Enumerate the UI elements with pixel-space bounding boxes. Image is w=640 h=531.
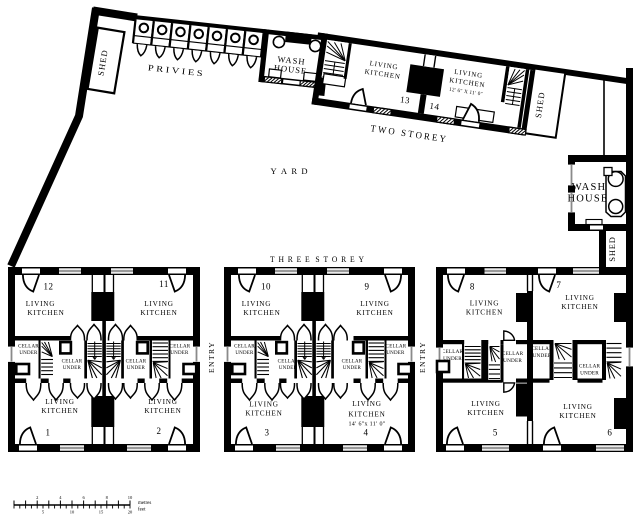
svg-text:KITCHEN: KITCHEN — [348, 411, 385, 419]
svg-text:KITCHEN: KITCHEN — [140, 309, 177, 317]
svg-text:LIVING: LIVING — [565, 294, 595, 302]
svg-text:11: 11 — [159, 279, 169, 289]
svg-text:CELLAR: CELLAR — [170, 345, 191, 350]
svg-text:KITCHEN: KITCHEN — [466, 309, 503, 317]
svg-text:KITCHEN: KITCHEN — [144, 407, 181, 415]
svg-text:LIVING: LIVING — [360, 300, 390, 308]
svg-text:KITCHEN: KITCHEN — [559, 412, 596, 420]
svg-text:CELLAR: CELLAR — [18, 345, 39, 350]
svg-text:UNDER: UNDER — [343, 366, 362, 371]
svg-text:KITCHEN: KITCHEN — [41, 407, 78, 415]
svg-text:5: 5 — [493, 428, 498, 438]
svg-text:LIVING: LIVING — [242, 300, 272, 308]
svg-text:SHED: SHED — [607, 236, 617, 261]
svg-text:2: 2 — [157, 426, 162, 436]
svg-text:ENTRY: ENTRY — [418, 341, 427, 373]
svg-text:LIVING: LIVING — [470, 300, 500, 308]
svg-text:14: 14 — [429, 101, 440, 112]
svg-text:UNDER: UNDER — [386, 351, 405, 356]
svg-text:KITCHEN: KITCHEN — [243, 309, 280, 317]
svg-text:4: 4 — [364, 428, 369, 438]
svg-text:10: 10 — [70, 510, 75, 515]
svg-text:LIVING: LIVING — [26, 300, 56, 308]
svg-text:CELLAR: CELLAR — [62, 360, 83, 365]
svg-text:12: 12 — [44, 282, 54, 292]
svg-text:UNDER: UNDER — [63, 366, 82, 371]
svg-text:KITCHEN: KITCHEN — [27, 309, 64, 317]
svg-text:WASH: WASH — [572, 182, 607, 193]
svg-text:LIVING: LIVING — [45, 398, 75, 406]
svg-text:LIVING: LIVING — [249, 401, 279, 409]
svg-text:UNDER: UNDER — [19, 351, 38, 356]
svg-text:7: 7 — [556, 280, 561, 290]
svg-text:9: 9 — [365, 282, 370, 292]
svg-text:KITCHEN: KITCHEN — [467, 409, 504, 417]
svg-text:LIVING: LIVING — [471, 400, 501, 408]
svg-text:CELLAR: CELLAR — [342, 360, 363, 365]
svg-text:LIVING: LIVING — [352, 400, 382, 408]
svg-text:3: 3 — [265, 428, 270, 438]
svg-text:KITCHEN: KITCHEN — [356, 309, 393, 317]
svg-text:13: 13 — [399, 94, 410, 105]
svg-text:HOUSE: HOUSE — [567, 194, 608, 205]
svg-text:UNDER: UNDER — [533, 353, 552, 359]
svg-text:feet: feet — [138, 508, 146, 513]
svg-text:ENTRY: ENTRY — [207, 341, 216, 373]
svg-text:10: 10 — [128, 495, 133, 500]
svg-text:2: 2 — [36, 495, 38, 500]
svg-text:KITCHEN: KITCHEN — [245, 410, 282, 418]
svg-text:metres: metres — [138, 501, 151, 506]
svg-text:6: 6 — [607, 428, 612, 438]
svg-text:CELLAR: CELLAR — [386, 345, 407, 350]
svg-text:Y A R D: Y A R D — [271, 167, 308, 176]
svg-text:UNDER: UNDER — [127, 366, 146, 371]
svg-text:UNDER: UNDER — [235, 351, 254, 356]
svg-text:15: 15 — [99, 510, 104, 515]
svg-text:1: 1 — [46, 428, 51, 438]
svg-text:CELLAR: CELLAR — [442, 349, 464, 355]
svg-text:CELLAR: CELLAR — [502, 351, 524, 357]
svg-text:LIVING: LIVING — [148, 398, 178, 406]
svg-text:UNDER: UNDER — [170, 351, 189, 356]
svg-text:UNDER: UNDER — [580, 371, 599, 377]
svg-text:LIVING: LIVING — [144, 300, 174, 308]
svg-text:10: 10 — [261, 282, 271, 292]
svg-text:CELLAR: CELLAR — [579, 364, 601, 370]
svg-text:KITCHEN: KITCHEN — [561, 303, 598, 311]
svg-text:UNDER: UNDER — [503, 358, 522, 364]
svg-text:LIVING: LIVING — [563, 403, 593, 411]
svg-text:T H R E E S T O R E: T H R E E S T O R E Y — [270, 254, 364, 264]
svg-text:8: 8 — [470, 282, 475, 292]
svg-text:CELLAR: CELLAR — [234, 345, 255, 350]
svg-text:20: 20 — [128, 510, 133, 515]
svg-text:CELLAR: CELLAR — [126, 360, 147, 365]
